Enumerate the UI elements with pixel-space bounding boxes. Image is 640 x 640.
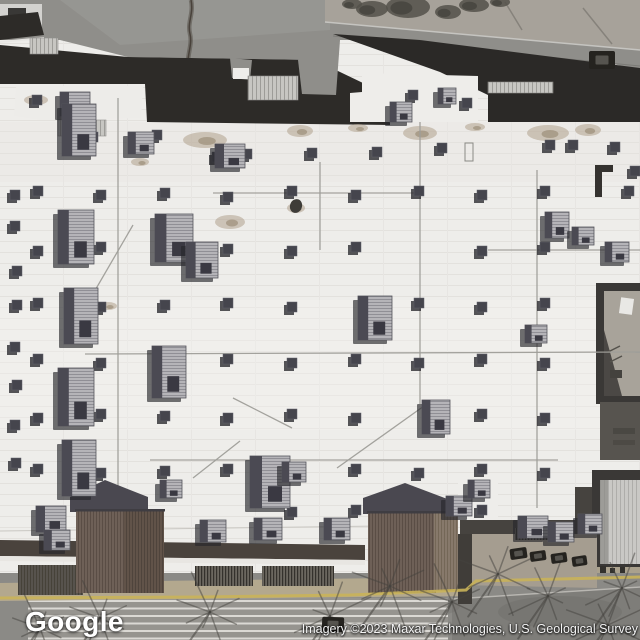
satellite-imagery [0, 0, 640, 640]
satellite-map-canvas[interactable]: Google Imagery ©2023 Maxar Technologies,… [0, 0, 640, 640]
google-logo[interactable]: Google [25, 606, 124, 638]
map-attribution: Imagery ©2023 Maxar Technologies, U.S. G… [302, 622, 638, 636]
